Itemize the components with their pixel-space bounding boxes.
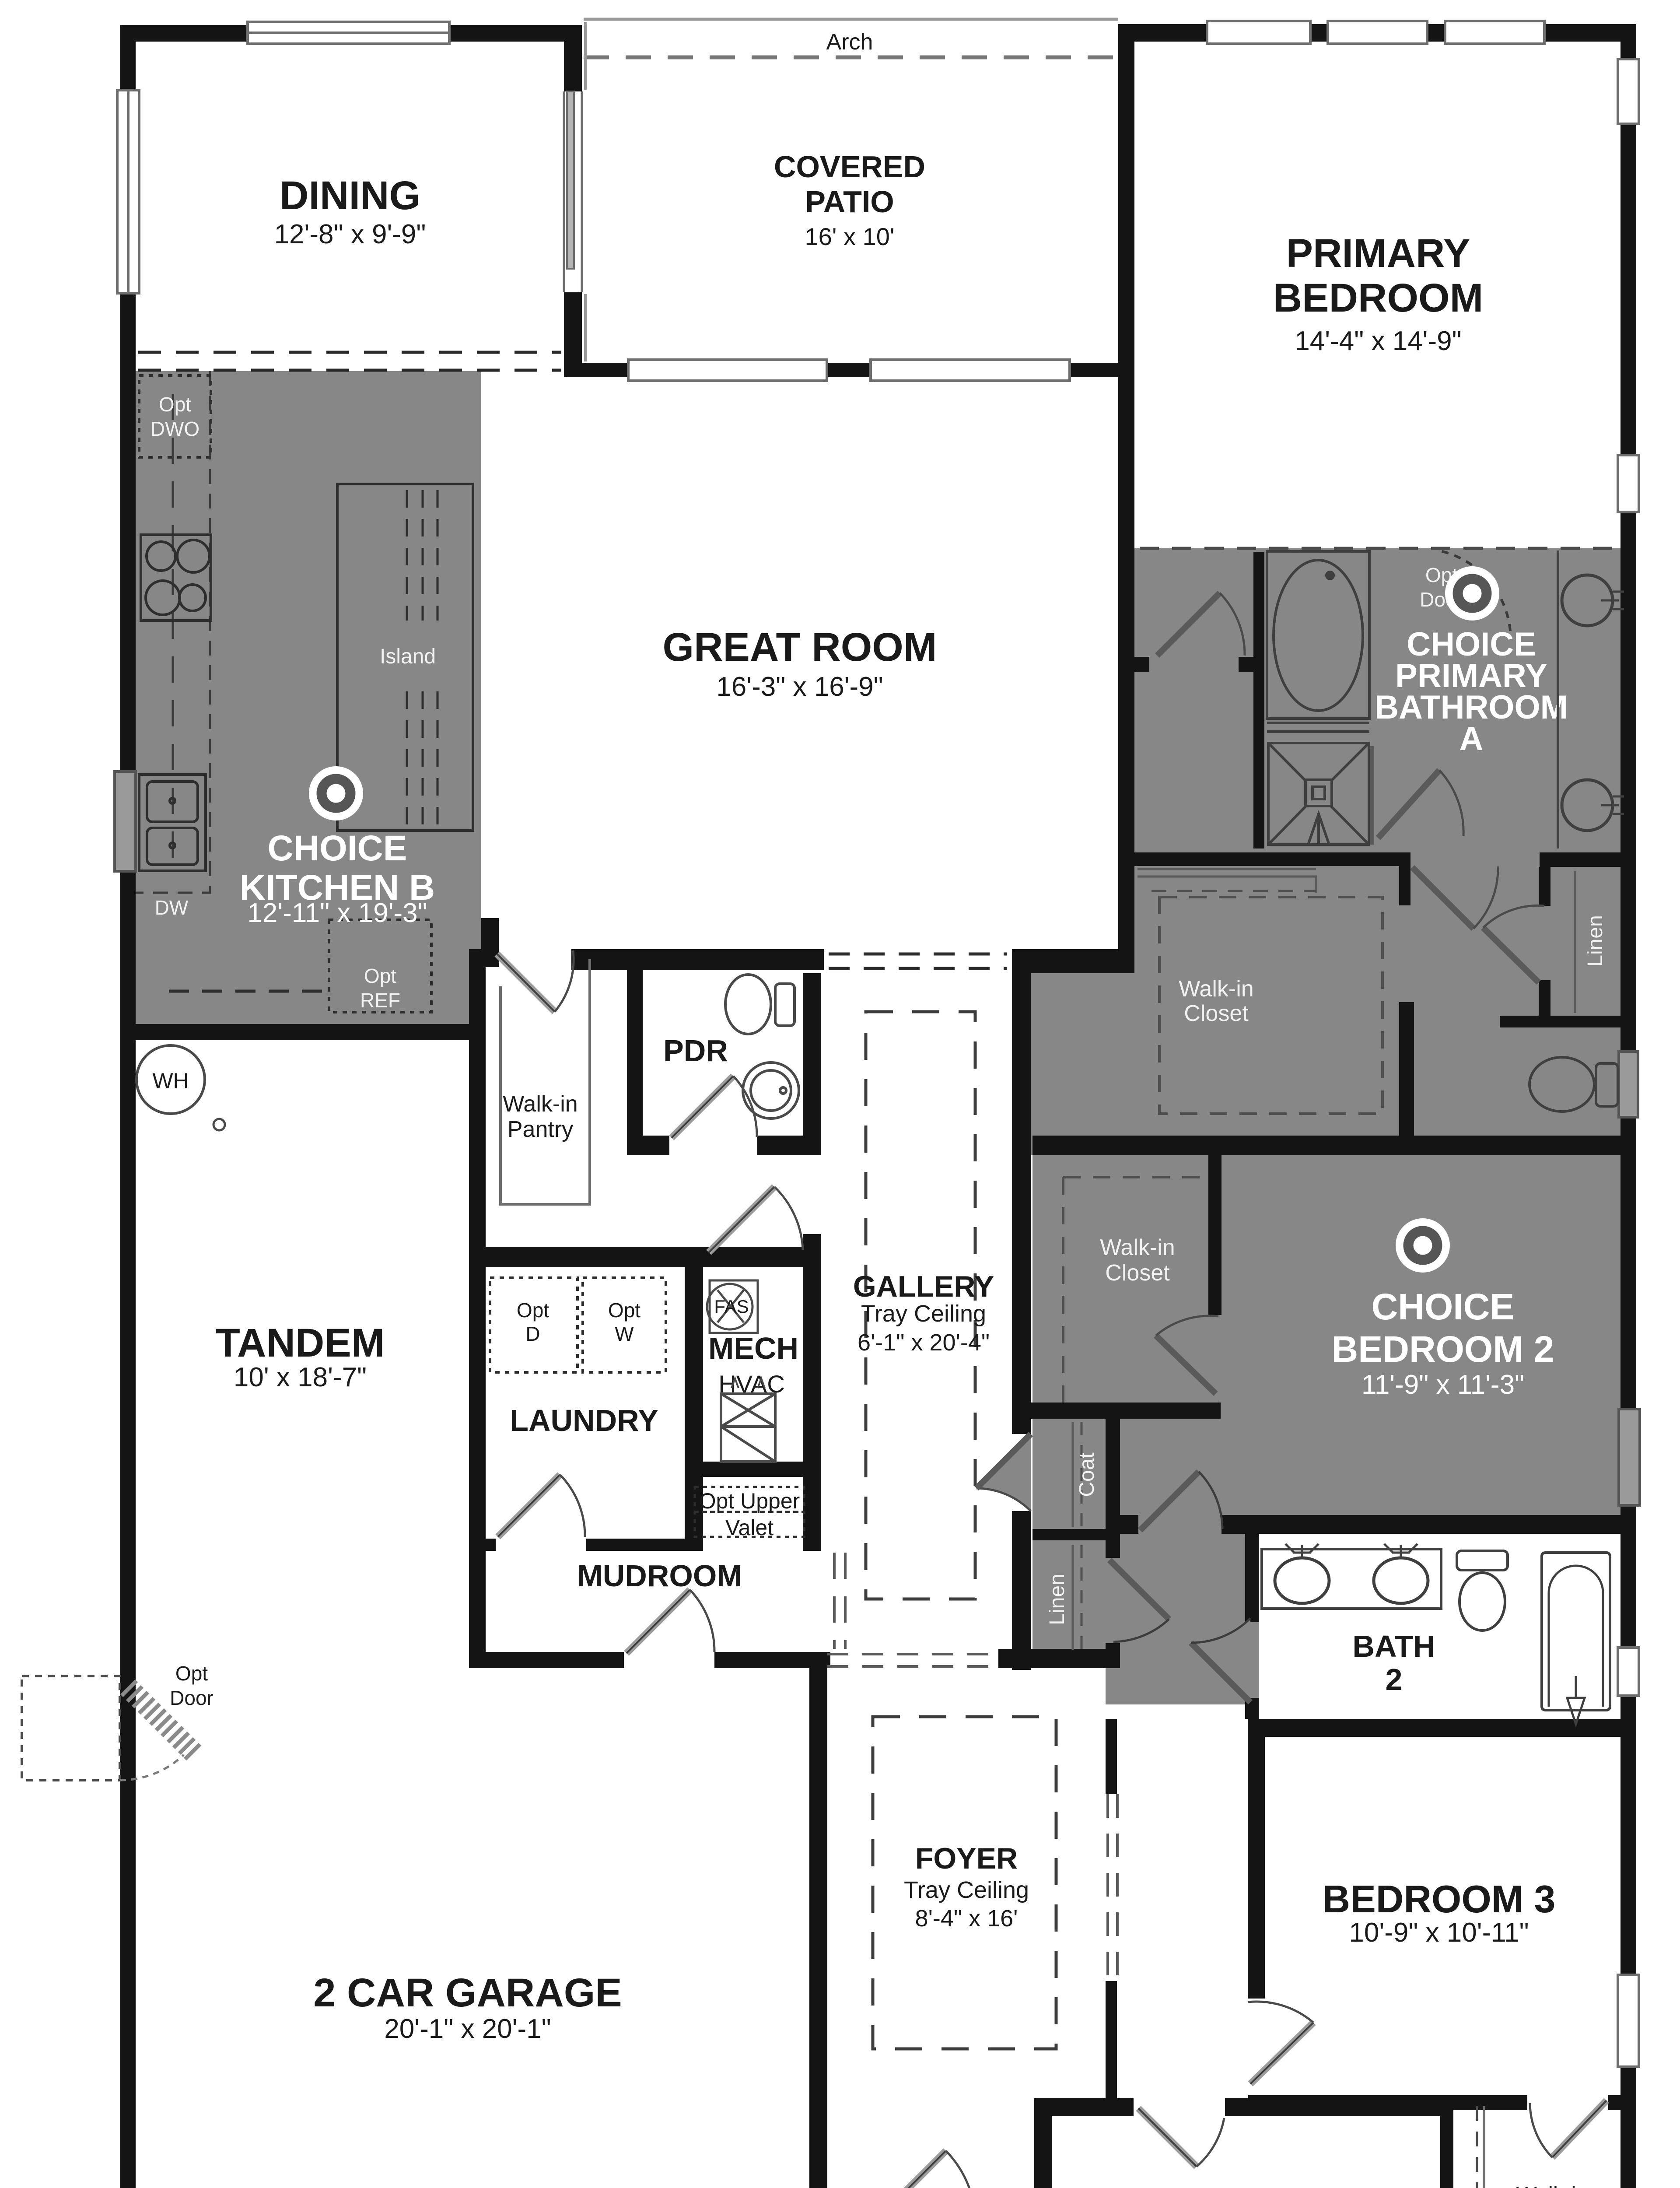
svg-text:FAS: FAS	[714, 1296, 749, 1317]
svg-text:MECH: MECH	[708, 1331, 798, 1365]
svg-text:GREAT ROOM: GREAT ROOM	[663, 625, 937, 670]
svg-text:2 CAR GARAGE: 2 CAR GARAGE	[313, 1971, 622, 2015]
svg-text:2: 2	[1386, 1662, 1403, 1697]
svg-text:GALLERY: GALLERY	[853, 1270, 994, 1303]
svg-text:10' x 18'-7": 10' x 18'-7"	[234, 1362, 367, 1392]
svg-text:6'-1" x 20'-4": 6'-1" x 20'-4"	[857, 1329, 990, 1356]
svg-text:Opt: Opt	[608, 1299, 640, 1322]
svg-text:Linen: Linen	[1046, 1574, 1069, 1625]
svg-text:Linen: Linen	[1584, 915, 1607, 966]
svg-text:DINING: DINING	[280, 173, 420, 218]
svg-text:Walk-in: Walk-in	[1100, 1235, 1175, 1260]
svg-text:BEDROOM: BEDROOM	[1273, 276, 1483, 320]
svg-text:W: W	[615, 1322, 634, 1345]
svg-text:Opt Upper: Opt Upper	[699, 1489, 800, 1513]
svg-text:A: A	[1459, 720, 1484, 757]
svg-text:Walk-in: Walk-in	[503, 1091, 577, 1117]
svg-text:WH: WH	[152, 1069, 189, 1093]
svg-text:PDR: PDR	[663, 1034, 728, 1068]
svg-text:20'-1" x 20'-1": 20'-1" x 20'-1"	[384, 2014, 551, 2044]
svg-text:Closet: Closet	[1184, 1001, 1249, 1026]
svg-text:PRIMARY: PRIMARY	[1286, 231, 1470, 276]
svg-text:Island: Island	[380, 645, 436, 668]
svg-text:Walk-in: Walk-in	[1516, 2182, 1589, 2188]
svg-text:14'-4" x 14'-9": 14'-4" x 14'-9"	[1295, 326, 1461, 356]
svg-text:Door: Door	[170, 1687, 213, 1709]
svg-text:TANDEM: TANDEM	[216, 1321, 385, 1365]
svg-text:CHOICE: CHOICE	[1372, 1286, 1515, 1327]
svg-text:16' x 10': 16' x 10'	[805, 223, 894, 250]
svg-text:16'-3" x 16'-9": 16'-3" x 16'-9"	[716, 672, 883, 702]
svg-text:CHOICE: CHOICE	[268, 828, 407, 868]
svg-text:Closet: Closet	[1105, 1260, 1170, 1286]
svg-text:Tray Ceiling: Tray Ceiling	[861, 1301, 986, 1327]
svg-text:Opt: Opt	[517, 1299, 549, 1322]
svg-text:BEDROOM 3: BEDROOM 3	[1323, 1877, 1556, 1921]
svg-text:MUDROOM: MUDROOM	[577, 1559, 742, 1593]
svg-text:FOYER: FOYER	[915, 1842, 1018, 1875]
svg-text:Coat: Coat	[1075, 1452, 1099, 1497]
svg-text:Opt: Opt	[175, 1662, 208, 1685]
svg-text:Tray Ceiling: Tray Ceiling	[904, 1877, 1029, 1903]
svg-text:D: D	[525, 1322, 540, 1345]
svg-text:Opt: Opt	[364, 964, 396, 987]
svg-text:10'-9" x 10'-11": 10'-9" x 10'-11"	[1349, 1918, 1529, 1948]
svg-text:PATIO: PATIO	[805, 185, 894, 219]
svg-text:12'-11" x 19'-3": 12'-11" x 19'-3"	[247, 898, 427, 928]
svg-text:12'-8" x 9'-9": 12'-8" x 9'-9"	[274, 219, 426, 249]
svg-text:LAUNDRY: LAUNDRY	[510, 1403, 658, 1438]
svg-text:DW: DW	[155, 896, 189, 919]
svg-text:BATH: BATH	[1352, 1629, 1435, 1663]
svg-text:BEDROOM 2: BEDROOM 2	[1332, 1329, 1554, 1370]
svg-text:Pantry: Pantry	[507, 1117, 573, 1142]
svg-text:11'-9" x 11'-3": 11'-9" x 11'-3"	[1361, 1370, 1524, 1400]
svg-text:REF: REF	[360, 989, 400, 1012]
svg-text:COVERED: COVERED	[774, 150, 925, 184]
svg-text:8'-4" x 16': 8'-4" x 16'	[915, 1905, 1018, 1932]
svg-text:Arch: Arch	[826, 29, 873, 55]
svg-text:Valet: Valet	[725, 1515, 773, 1540]
svg-text:Opt: Opt	[159, 393, 191, 416]
svg-text:DWO: DWO	[150, 417, 199, 440]
svg-text:Walk-in: Walk-in	[1179, 976, 1253, 1002]
